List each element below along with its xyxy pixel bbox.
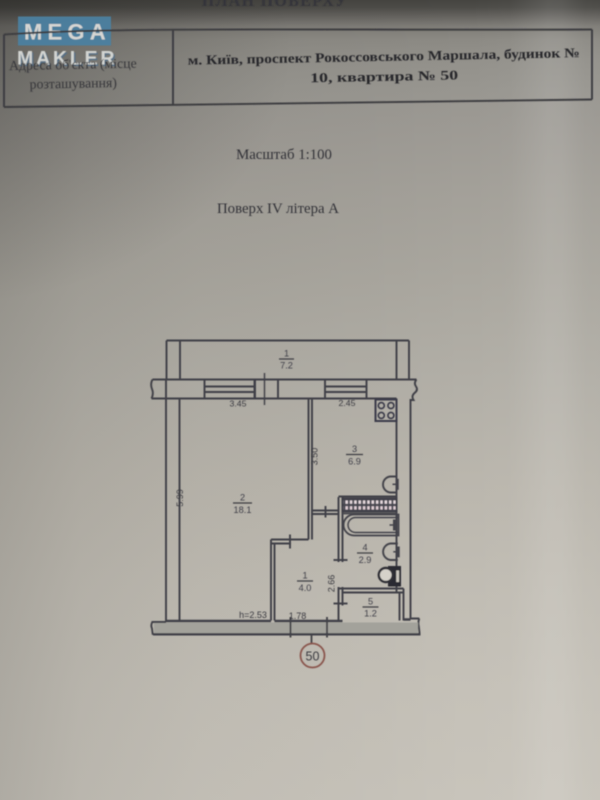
svg-text:1: 1 (284, 349, 289, 359)
svg-text:3: 3 (352, 444, 357, 454)
svg-text:м. Київ, проспект Рокоссовсько: м. Київ, проспект Рокоссовського Маршала… (188, 45, 580, 68)
svg-text:h=2.53: h=2.53 (239, 610, 267, 620)
svg-text:3.50: 3.50 (310, 448, 320, 466)
svg-text:7.2: 7.2 (280, 361, 293, 371)
svg-text:розташування): розташування) (29, 75, 117, 93)
svg-text:Поверх IV літера А: Поверх IV літера А (217, 201, 339, 217)
svg-text:2.9: 2.9 (359, 555, 372, 565)
svg-text:2.45: 2.45 (339, 398, 356, 408)
svg-text:2.66: 2.66 (327, 575, 337, 593)
svg-text:6.9: 6.9 (348, 457, 361, 467)
svg-text:ПЛАН ПОВЕРХУ: ПЛАН ПОВЕРХУ (202, 0, 348, 10)
svg-text:3.45: 3.45 (230, 399, 247, 409)
svg-text:4.0: 4.0 (299, 583, 312, 593)
svg-text:Масштаб 1:100: Масштаб 1:100 (236, 147, 332, 163)
svg-text:18.1: 18.1 (234, 505, 252, 515)
svg-text:5: 5 (368, 597, 373, 607)
svg-text:1.78: 1.78 (289, 611, 307, 621)
svg-text:5.99: 5.99 (175, 489, 185, 507)
svg-text:4: 4 (362, 543, 367, 553)
svg-text:Адреса об'єкта (місце: Адреса об'єкта (місце (9, 56, 137, 74)
svg-text:10, квартира № 50: 10, квартира № 50 (310, 67, 459, 85)
svg-text:50: 50 (306, 650, 320, 664)
svg-text:2: 2 (240, 493, 245, 503)
svg-text:1.2: 1.2 (364, 609, 377, 619)
svg-text:1: 1 (302, 571, 307, 581)
